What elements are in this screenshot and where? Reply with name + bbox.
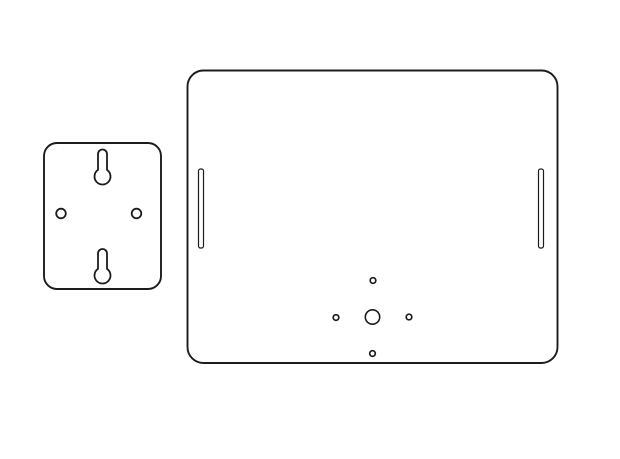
left-screw-hole — [56, 209, 66, 219]
wall-bracket-plate-outline — [44, 143, 161, 289]
top-keyhole-slot — [94, 150, 110, 185]
wall-bracket-plate — [44, 143, 161, 289]
bottom-small-hole — [370, 351, 376, 357]
diagram-stage — [0, 0, 620, 459]
mounting-plates-diagram — [0, 0, 620, 459]
right-small-hole — [406, 314, 412, 320]
backing-plate-outline — [188, 71, 558, 364]
top-small-hole — [370, 278, 376, 284]
right-screw-hole — [132, 209, 142, 219]
center-hole — [365, 310, 379, 324]
bottom-keyhole-slot — [94, 249, 110, 284]
right-edge-slot — [539, 169, 544, 248]
backing-plate — [188, 71, 558, 364]
left-small-hole — [333, 315, 339, 321]
left-edge-slot — [199, 169, 204, 248]
